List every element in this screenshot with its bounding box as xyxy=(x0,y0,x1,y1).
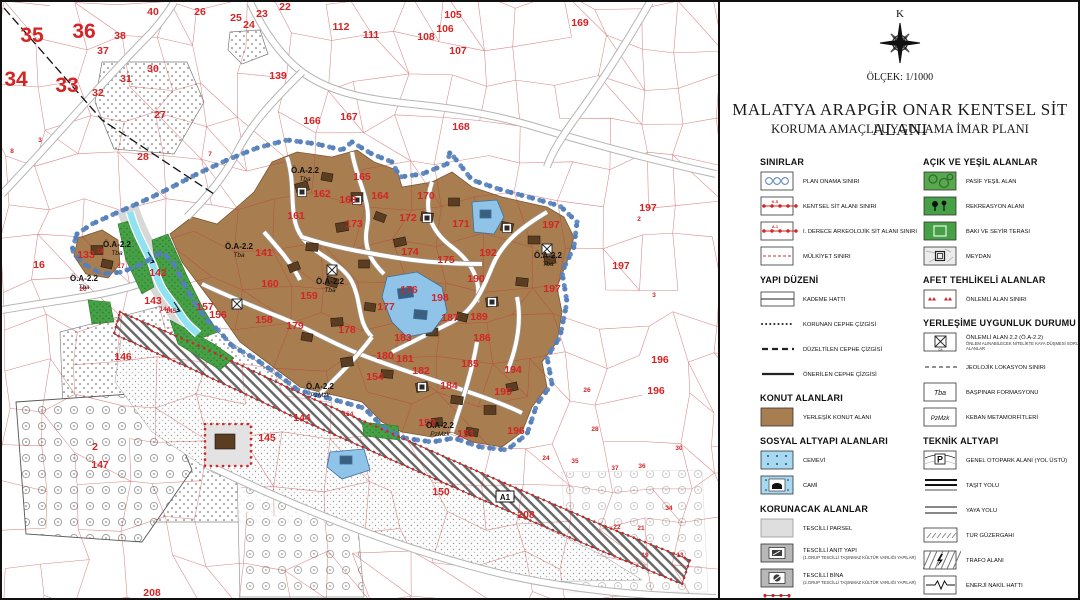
cemevi-swatch-icon xyxy=(760,450,798,472)
parcel-number: 163 xyxy=(339,194,357,206)
parcel-number: 180 xyxy=(376,350,394,362)
parcel-number: 187 xyxy=(441,312,459,324)
parcel-number: 111 xyxy=(363,29,380,41)
parcel-number: 30 xyxy=(147,63,159,75)
parcel-number: 196 xyxy=(647,385,665,397)
parcel-number: 197 xyxy=(612,260,630,272)
legend-item-label: YAYA YOLU xyxy=(966,508,997,515)
legend-item-label: PLAN ONAMA SINIRI xyxy=(803,179,859,186)
building xyxy=(484,406,496,415)
legend-item-label: YERLEŞİK KONUT ALANI xyxy=(803,415,871,422)
parcel-number: 133 xyxy=(77,249,95,261)
zone-code-label: Tba xyxy=(542,261,554,268)
rekre-swatch-icon xyxy=(923,196,961,218)
map-canvas: 3536343337383130322728402625232422112111… xyxy=(2,2,718,598)
north-label: K xyxy=(720,8,1080,20)
parcel-number: 185 xyxy=(461,358,479,370)
building xyxy=(528,236,540,244)
legend-section-title: AFET TEHLİKELİ ALANLAR xyxy=(923,275,1080,285)
parcel-number: 22 xyxy=(613,524,621,531)
parcel-number: 168 xyxy=(452,121,470,133)
legend-item-enerji: ENERJİ NAKİL HATTI xyxy=(923,575,1080,597)
parcel-number: 150 xyxy=(432,486,450,498)
otopark-swatch-icon: P xyxy=(923,450,961,472)
parcel-number: 145 xyxy=(258,432,276,444)
plan-sheet: 3536343337383130322728402625232422112111… xyxy=(0,0,1080,600)
oa22-swatch-icon: ÖA xyxy=(923,332,961,354)
mulkiyet-swatch-icon xyxy=(760,246,798,268)
parcel-number: 147 xyxy=(91,459,109,471)
legend-item-label: MÜLKİYET SINIRI xyxy=(803,254,851,261)
legend-item-label: TUR GÜZERGAHI xyxy=(966,533,1014,540)
tescilli-icon xyxy=(503,224,512,233)
parcel-number: 36 xyxy=(638,463,646,470)
legend-item-label: PASİF YEŞİL ALAN xyxy=(966,179,1016,186)
legend-item-onlemli: ÖNLEMLİ ALAN SINIRI xyxy=(923,289,1080,311)
legend-column-left: SINIRLARPLAN ONAMA SINIRIK.SKENTSEL SİT … xyxy=(760,150,930,600)
parcel-number: 196 xyxy=(507,425,525,437)
parcel-number: 19 xyxy=(641,552,649,559)
parcel-number: 167 xyxy=(340,111,358,123)
legend-item-baki: BAKI VE SEYİR TERASI xyxy=(923,221,1080,243)
parcel-number: 3 xyxy=(38,137,42,144)
building xyxy=(306,242,319,251)
parcel-number: 21 xyxy=(637,525,645,532)
legend-section-title: AÇIK VE YEŞİL ALANLAR xyxy=(923,157,1080,167)
building xyxy=(340,357,353,368)
legend-item-tasit: TAŞIT YOLU xyxy=(923,475,1080,497)
parcel-number: 179 xyxy=(286,320,304,332)
legend-item-label: ENERJİ NAKİL HATTI xyxy=(966,583,1023,590)
parcel-number: 192 xyxy=(479,247,497,259)
parcel-number: 175 xyxy=(437,254,455,266)
zone-code-label: Tba xyxy=(324,287,336,294)
parcel-number: 142 xyxy=(149,267,167,279)
legend-item-label: ÖNERİLEN CEPHE ÇİZGİSİ xyxy=(803,372,877,379)
parcel-number: 7 xyxy=(208,151,212,158)
parcel-number: 108 xyxy=(417,31,435,43)
parcel-number: 2 xyxy=(92,441,98,453)
parcel-number: 23 xyxy=(256,8,268,20)
legend-item-label: CAMİ xyxy=(803,483,818,490)
parcel-number: 16 xyxy=(33,259,45,271)
parcel-number: 106 xyxy=(436,23,454,35)
svg-text:Tba: Tba xyxy=(934,390,946,397)
map-area: 3536343337383130322728402625232422112111… xyxy=(2,2,718,598)
parcel-number: 26 xyxy=(583,387,591,394)
enerji-swatch-icon xyxy=(923,575,961,597)
tescilli-icon xyxy=(418,383,427,392)
parcel-number: 154 xyxy=(366,371,384,383)
plan-subtitle: KORUMA AMAÇLI UYGULAMA İMAR PLANI xyxy=(720,122,1080,137)
duzeltilen-swatch-icon xyxy=(760,339,798,361)
parcel-number: 151 xyxy=(457,428,475,440)
svg-text:A1: A1 xyxy=(500,493,511,502)
parcel-number: 37 xyxy=(97,45,109,57)
parcel-number: 2 xyxy=(637,216,641,223)
arkeo-swatch-icon: A.1 xyxy=(760,221,798,243)
tur-swatch-icon xyxy=(923,525,961,547)
parcel-number: 105 xyxy=(444,9,462,21)
parcel-number: 17 xyxy=(117,263,125,270)
parcel-number: 162 xyxy=(313,188,331,200)
legend-item-kentsel: K.SKENTSEL SİT ALANI SINIRI xyxy=(760,196,930,218)
zone-code-label: Tba xyxy=(233,252,245,259)
korunan-swatch-icon xyxy=(760,314,798,336)
compass: K ÖLÇEK: 1/1000 xyxy=(720,8,1080,83)
parcel-number: 107 xyxy=(449,45,467,57)
legend-item-pasif: PASİF YEŞİL ALAN xyxy=(923,171,1080,193)
legend-section-title: KONUT ALANLARI xyxy=(760,393,930,403)
legend-item-rekre: REKREASYON ALANI xyxy=(923,196,1080,218)
zone-code-label: Ö.A-2.2 xyxy=(306,382,335,391)
legend-item-bina: TESCİLLİ BİNA(2.GRUP TESCİLLİ TAŞINMAZ K… xyxy=(760,568,930,590)
legend-section-title: KORUNACAK ALANLAR xyxy=(760,504,930,514)
bina-swatch-icon xyxy=(760,568,798,590)
building xyxy=(451,395,464,405)
parcel-number: 160 xyxy=(261,278,279,290)
parcel-number: 195 xyxy=(494,386,512,398)
zone-code-label: Ö.A-2.2 xyxy=(70,274,99,283)
parcel-number: 22 xyxy=(279,2,291,13)
parcel-number: 18 xyxy=(96,248,104,255)
parcel-number: 183 xyxy=(394,332,412,344)
legend-item-duzeltilen: DÜZELTİLEN CEPHE ÇİZGİSİ xyxy=(760,339,930,361)
compass-rose-icon xyxy=(877,20,923,66)
legend-item-label: GENEL OTOPARK ALANI (YOL ÜSTÜ) xyxy=(966,458,1067,465)
parcel-number: 197 xyxy=(639,202,657,214)
legend-item-otopark: PGENEL OTOPARK ALANI (YOL ÜSTÜ) xyxy=(923,450,1080,472)
legend-item-a1leg: A1A.1I.DERECE ARKEOLOJİK SİT ALANI xyxy=(760,593,930,600)
parcel-number: 198 xyxy=(431,292,449,304)
pasif-swatch-icon xyxy=(923,171,961,193)
legend-item-label: ÖNLEMLİ ALAN 2.2 (Ö.A-2.2) xyxy=(966,335,1080,342)
parcel-number: 35 xyxy=(571,458,579,465)
legend-item-plan: PLAN ONAMA SINIRI xyxy=(760,171,930,193)
building xyxy=(359,260,370,268)
svg-text:K.S: K.S xyxy=(772,199,779,204)
parcel-number: 13 xyxy=(676,552,684,559)
legend-item-yaya: YAYA YOLU xyxy=(923,500,1080,522)
legend-section-title: YAPI DÜZENİ xyxy=(760,275,930,285)
parcel-number: 184 xyxy=(440,380,458,392)
svg-text:PzMzk: PzMzk xyxy=(931,415,950,422)
parcel-number: 33 xyxy=(55,74,78,97)
zone-code-label: Ö.A-2.2 xyxy=(225,242,254,251)
kentsel-swatch-icon: K.S xyxy=(760,196,798,218)
parcel-number: 171 xyxy=(452,218,470,230)
legend-item-anit: TESCİLLİ ANIT YAPI(1.GRUP TESCİLLİ TAŞIN… xyxy=(760,543,930,565)
legend-item-tba: TbaBAŞPINAR FORMASYONU xyxy=(923,382,1080,404)
parcel-number: 26 xyxy=(194,6,206,18)
building xyxy=(364,302,376,311)
parcel-number: 189 xyxy=(470,311,488,323)
parcel-number: 28 xyxy=(591,426,599,433)
cami-swatch-icon xyxy=(760,475,798,497)
parcel-number: 190 xyxy=(467,273,485,285)
legend-item-sublabel: (1.GRUP TESCİLLİ TAŞINMAZ KÜLTÜR VARLIĞI… xyxy=(803,555,916,560)
zone-code-label: Tba xyxy=(299,176,311,183)
parcel-number: 158 xyxy=(255,314,273,326)
parcel-number: 208 xyxy=(517,509,535,521)
parcel-number: 194 xyxy=(504,364,522,376)
legend-item-sublabel: (2.GRUP TESCİLLİ TAŞINMAZ KÜLTÜR VARLIĞI… xyxy=(803,580,916,585)
legend-item-parsel: TESCİLLİ PARSEL xyxy=(760,518,930,540)
legend-item-trafo: TRAFO ALANI xyxy=(923,550,1080,572)
legend-item-yerlesik: YERLEŞİK KONUT ALANI xyxy=(760,407,930,429)
legend-item-arkeo: A.1I. DERECE ARKEOLOJİK SİT ALANI SINIRI xyxy=(760,221,930,243)
legend-section-title: YERLEŞİME UYGUNLUK DURUMU xyxy=(923,318,1080,328)
legend-item-label: I. DERECE ARKEOLOJİK SİT ALANI SINIRI xyxy=(803,229,917,236)
svg-text:A.1: A.1 xyxy=(772,224,779,229)
parcel-number: 174 xyxy=(401,246,419,258)
legend-item-tur: TUR GÜZERGAHI xyxy=(923,525,1080,547)
parcel-number: 177 xyxy=(377,301,395,313)
legend-item-label: JEOLOJİK LOKASYON SINIRI xyxy=(966,365,1046,372)
legend-section-title: SOSYAL ALTYAPI ALANLARI xyxy=(760,436,930,446)
legend-item-label: DÜZELTİLEN CEPHE ÇİZGİSİ xyxy=(803,347,882,354)
onerilen-swatch-icon xyxy=(760,364,798,386)
trafo-swatch-icon xyxy=(923,550,961,572)
scale-label: ÖLÇEK: 1/1000 xyxy=(720,72,1080,83)
yaya-swatch-icon xyxy=(923,500,961,522)
parcel-number: 35 xyxy=(20,24,44,47)
parcel-number: 144 xyxy=(293,412,311,424)
kademe-swatch-icon xyxy=(760,289,798,311)
plan-swatch-icon xyxy=(760,171,798,193)
legend-item-kademe: KADEME HATTI xyxy=(760,289,930,311)
legend-item-label: REKREASYON ALANI xyxy=(966,204,1024,211)
legend-item-jeolojik: JEOLOJİK LOKASYON SINIRI xyxy=(923,357,1080,379)
a1-zone-label: A1 xyxy=(496,491,514,502)
parcel-number: 186 xyxy=(473,332,491,344)
legend-item-meydan: MEYDAN xyxy=(923,246,1080,268)
legend-item-sublabel: ÖNLEM ALINABİLECEK NİTELİKTE KAYA DÜŞMES… xyxy=(966,341,1080,351)
parcel-number: 181 xyxy=(396,353,414,365)
building xyxy=(301,332,313,342)
parcel-number: 40 xyxy=(147,6,159,18)
building xyxy=(321,172,333,182)
parcel-number: 34 xyxy=(665,505,673,512)
parcel-number: 34 xyxy=(4,68,28,91)
parcel-number: 146 xyxy=(114,351,132,363)
parcel-number: 156 xyxy=(209,309,227,321)
parcel-number: 30 xyxy=(675,445,683,452)
parcel-number: 161 xyxy=(287,210,305,222)
parcel-number: 36 xyxy=(72,20,95,43)
zone-code-label: Ö.A-2.2 xyxy=(291,166,320,175)
tescilli-icon xyxy=(298,188,307,197)
legend-item-label: KEBAN METAMORFİTLERİ xyxy=(966,415,1038,422)
parcel-number: 31 xyxy=(120,73,132,85)
legend-column-right: AÇIK VE YEŞİL ALANLARPASİF YEŞİL ALANREK… xyxy=(923,150,1080,600)
a1leg-swatch-icon: A1A.1 xyxy=(760,593,798,600)
legend-item-label: TESCİLLİ PARSEL xyxy=(803,526,852,533)
zone-code-label: Tba xyxy=(111,250,123,257)
svg-text:ÖA: ÖA xyxy=(938,348,942,352)
parcel-number: 112 xyxy=(333,21,350,33)
legend-item-label: KORUNAN CEPHE ÇİZGİSİ xyxy=(803,322,876,329)
parcel-number: 197 xyxy=(542,219,560,231)
legend-item-label: KENTSEL SİT ALANI SINIRI xyxy=(803,204,876,211)
tescilli-icon xyxy=(488,298,497,307)
parcel-number: 37 xyxy=(611,465,619,472)
stippled-field xyxy=(228,30,268,64)
legend-item-cami: CAMİ xyxy=(760,475,930,497)
tasit-swatch-icon xyxy=(923,475,961,497)
parcel-number: 38 xyxy=(114,30,126,42)
parcel-number: 170 xyxy=(417,190,435,202)
pzmzk-swatch-icon: PzMzk xyxy=(923,407,961,429)
anit-swatch-icon xyxy=(760,543,798,565)
legend-item-label: BAKI VE SEYİR TERASI xyxy=(966,229,1030,236)
zone-code-label: Tba xyxy=(78,284,90,291)
legend-item-onerilen: ÖNERİLEN CEPHE ÇİZGİSİ xyxy=(760,364,930,386)
onlemli-swatch-icon xyxy=(923,289,961,311)
legend-item-label: TESCİLLİ ANIT YAPI xyxy=(803,548,916,555)
legend-item-label: ÖNLEMLİ ALAN SINIRI xyxy=(966,297,1027,304)
parcel-number: 24 xyxy=(243,19,255,31)
zone-code-label: Ö.A-2.2 xyxy=(103,240,132,249)
legend-panel: K ÖLÇEK: 1/1000 xyxy=(718,2,1080,598)
yerlesik-swatch-icon xyxy=(760,407,798,429)
baki-swatch-icon xyxy=(923,221,961,243)
legend-item-label: TAŞIT YOLU xyxy=(966,483,999,490)
parcel-number: 32 xyxy=(92,87,104,99)
parcel-number: 27 xyxy=(154,109,166,121)
parcel-number: 159 xyxy=(300,290,318,302)
parcel-number: 166 xyxy=(303,115,321,127)
legend-item-label: CEMEVİ xyxy=(803,458,825,465)
parcel-number: 25 xyxy=(230,12,242,24)
green-patch xyxy=(88,300,114,324)
parcel-number: 145 xyxy=(166,308,177,315)
legend-item-pzmzk: PzMzkKEBAN METAMORFİTLERİ xyxy=(923,407,1080,429)
parcel-number: 139 xyxy=(269,70,287,82)
legend-section-title: TEKNİK ALTYAPI xyxy=(923,436,1080,446)
parcel-number: 176 xyxy=(400,284,418,296)
parcel-number: 164 xyxy=(371,190,389,202)
meydan-swatch-icon xyxy=(923,246,961,268)
svg-text:P: P xyxy=(937,455,943,465)
parsel-swatch-icon xyxy=(760,518,798,540)
zone-code-label: Ö.A-2.2 xyxy=(316,277,345,286)
parcel-number: 208 xyxy=(143,587,161,598)
zone-code-label: PzMzk xyxy=(310,392,330,399)
legend-item-cemevi: CEMEVİ xyxy=(760,450,930,472)
parcel-number: 154 xyxy=(343,411,354,418)
legend-item-mulkiyet: MÜLKİYET SINIRI xyxy=(760,246,930,268)
building xyxy=(449,198,460,206)
legend-item-label: TESCİLLİ BİNA xyxy=(803,573,916,580)
legend-item-oa22: ÖAÖNLEMLİ ALAN 2.2 (Ö.A-2.2)ÖNLEM ALINAB… xyxy=(923,332,1080,354)
parcel-number: 182 xyxy=(412,365,430,377)
legend-item-label: MEYDAN xyxy=(966,254,991,261)
tescilli-icon xyxy=(423,214,432,223)
parcel-number: 196 xyxy=(651,354,669,366)
parcel-number: 165 xyxy=(353,171,371,183)
legend-item-label: BAŞPINAR FORMASYONU xyxy=(966,390,1038,397)
parcel-number: 3 xyxy=(652,292,656,299)
tba-swatch-icon: Tba xyxy=(923,382,961,404)
zone-code-label: Ö.A-2.2 xyxy=(534,251,563,260)
legend-item-korunan: KORUNAN CEPHE ÇİZGİSİ xyxy=(760,314,930,336)
parcel-number: 173 xyxy=(345,218,363,230)
legend-section-title: SINIRLAR xyxy=(760,157,930,167)
parcel-number: 169 xyxy=(571,17,589,29)
parcel-number: 178 xyxy=(338,324,356,336)
parcel-number: 8 xyxy=(10,148,14,155)
parcel-number: 141 xyxy=(255,247,273,259)
parcel-number: 197 xyxy=(543,283,561,295)
parcel-number: 24 xyxy=(542,455,550,462)
building xyxy=(516,277,529,286)
parcel-number: 28 xyxy=(137,151,149,163)
parcel-number: 172 xyxy=(399,212,417,224)
legend-item-label: TRAFO ALANI xyxy=(966,558,1004,565)
zone-code-label: PzMzk xyxy=(430,431,450,438)
zone-code-label: Ö.A-2.2 xyxy=(426,421,455,430)
legend-item-label: KADEME HATTI xyxy=(803,297,845,304)
jeolojik-swatch-icon xyxy=(923,357,961,379)
